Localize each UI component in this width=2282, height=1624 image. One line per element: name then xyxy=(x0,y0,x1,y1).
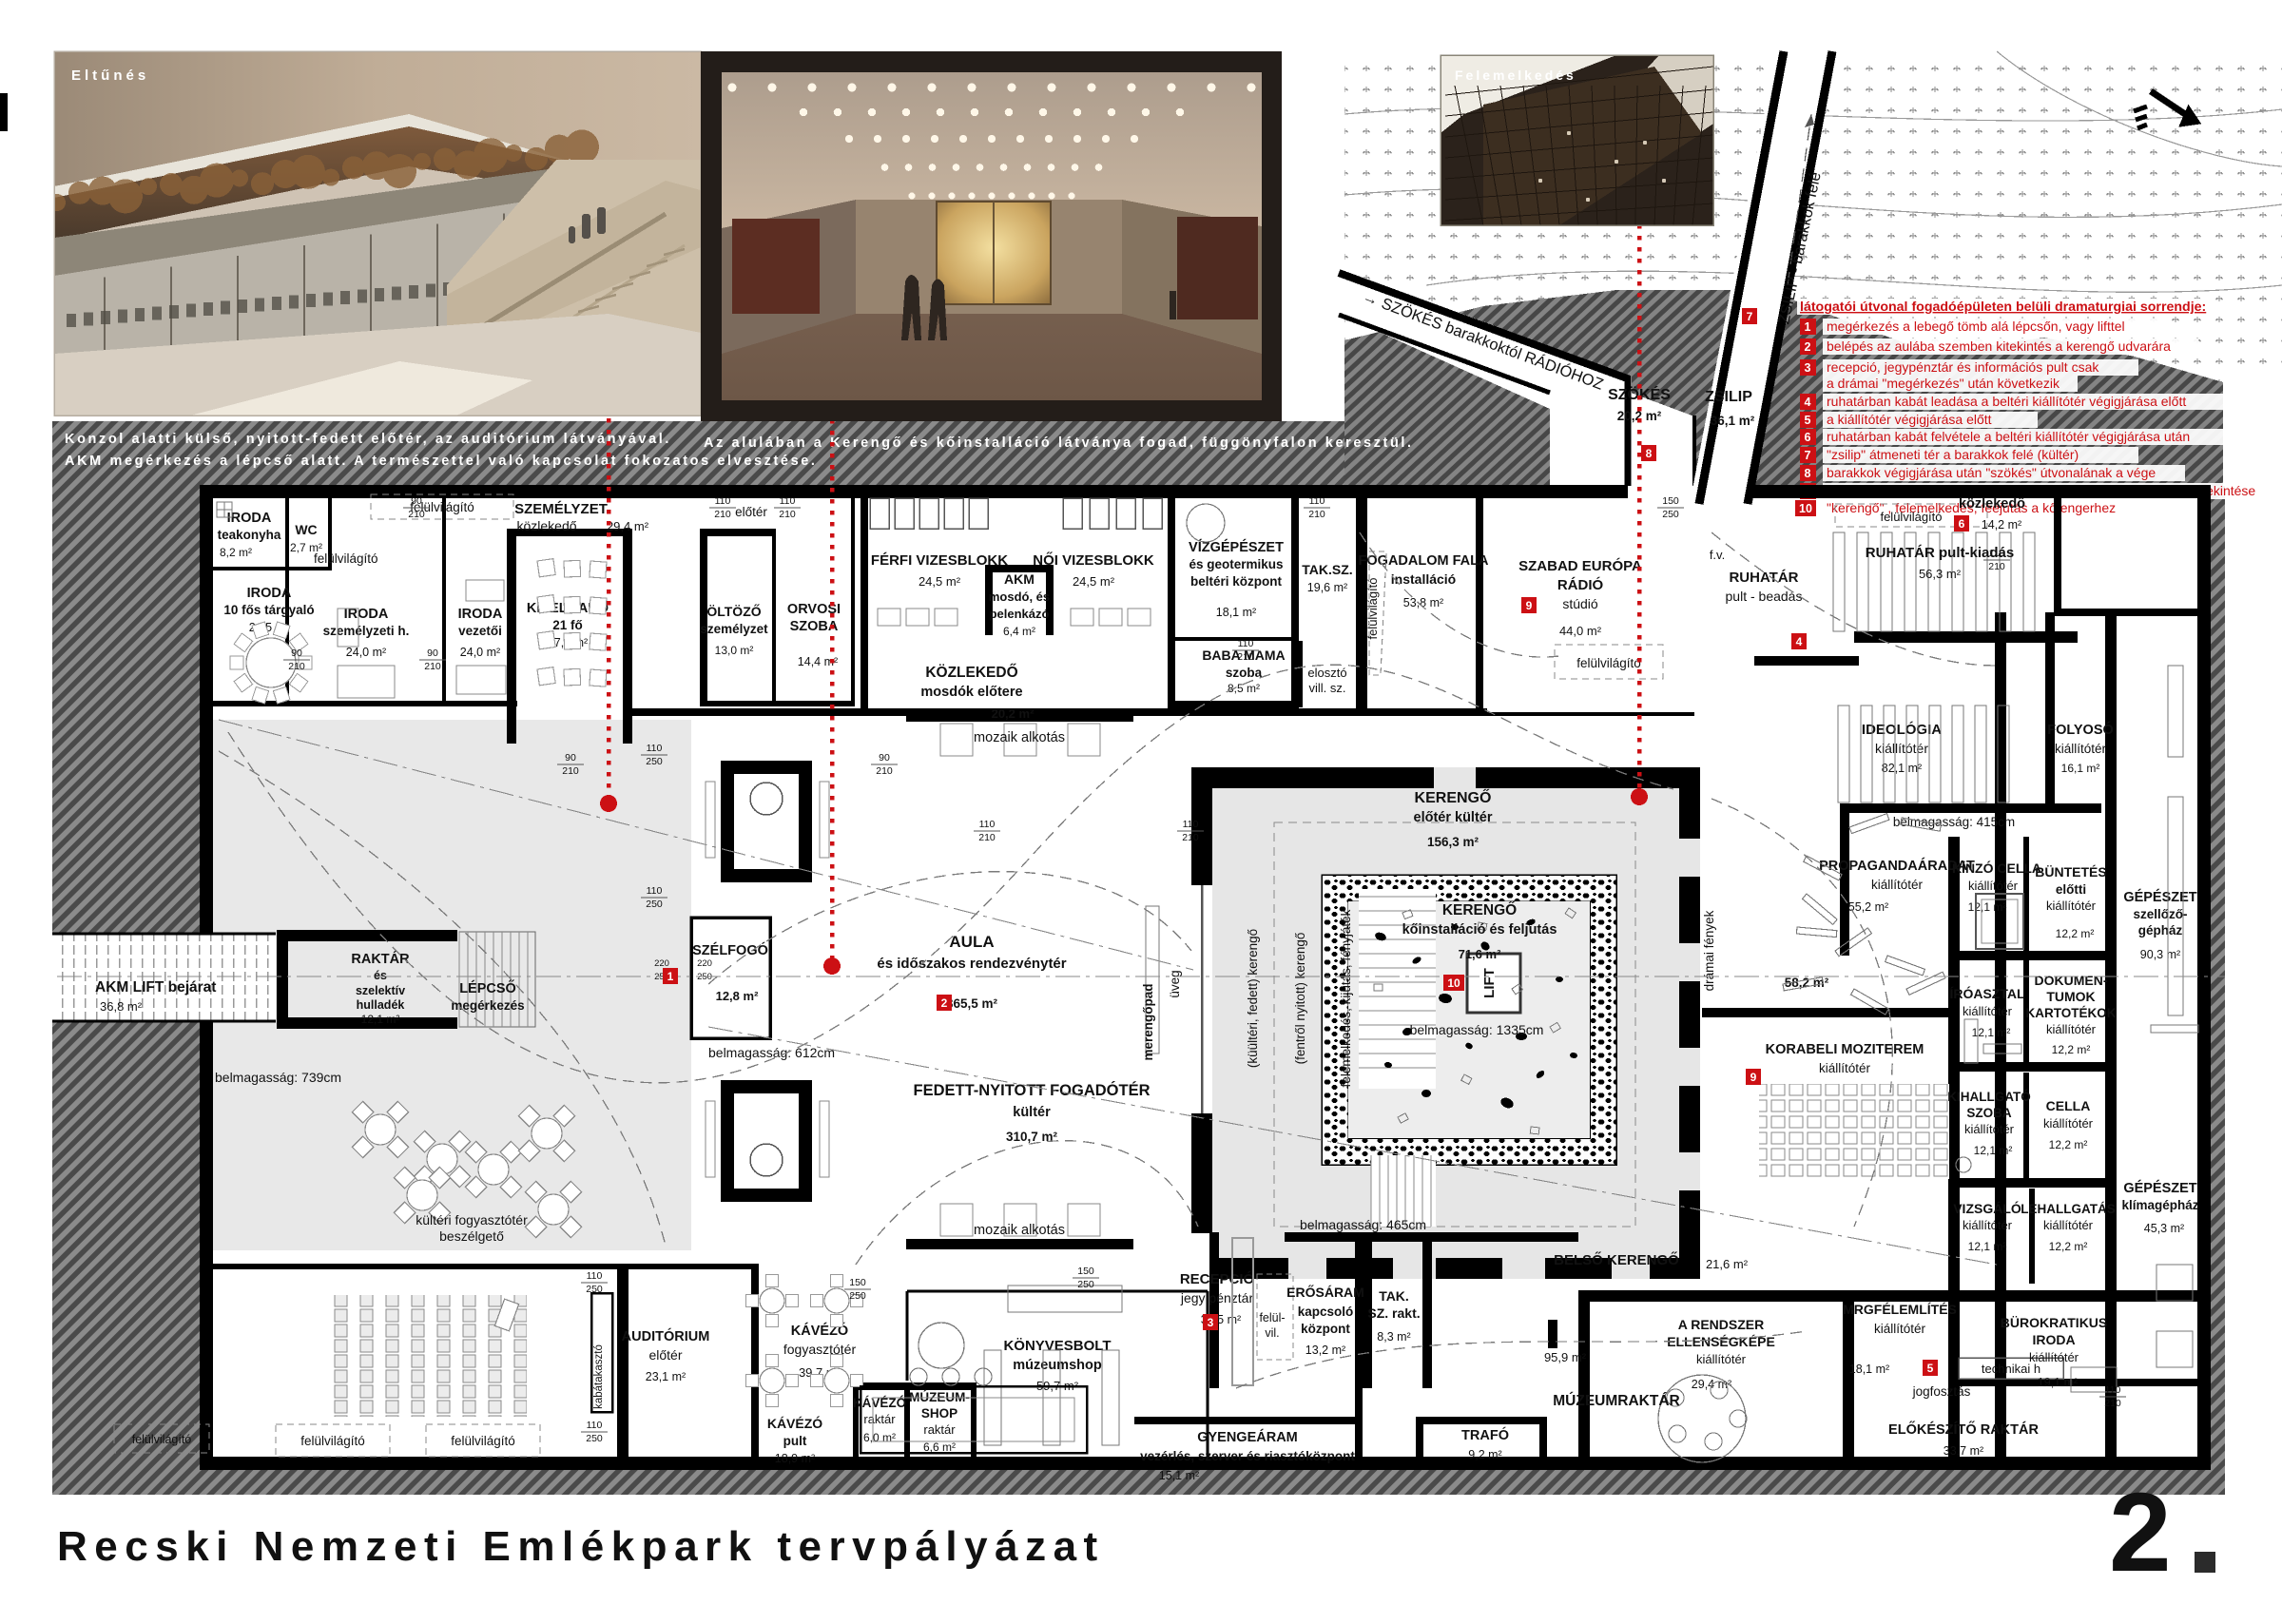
svg-text:szoba: szoba xyxy=(1226,666,1263,680)
svg-text:4: 4 xyxy=(1796,635,1803,648)
svg-text:KORABELI MOZITEREM: KORABELI MOZITEREM xyxy=(1766,1042,1924,1057)
svg-text:vezérlés, szerver és riasztókö: vezérlés, szerver és riasztóközpont xyxy=(1140,1449,1355,1463)
svg-text:LEHALLGATÁS: LEHALLGATÁS xyxy=(2021,1202,2116,1216)
svg-text:210: 210 xyxy=(1308,509,1325,520)
svg-text:kiállítótér: kiállítótér xyxy=(2043,1116,2094,1131)
svg-text:Felemelkedés: Felemelkedés xyxy=(1455,68,1576,83)
svg-text:TRAFÓ: TRAFÓ xyxy=(1461,1426,1509,1443)
svg-text:12,2 m²: 12,2 m² xyxy=(2052,1043,2091,1056)
svg-text:13,2 m²: 13,2 m² xyxy=(1305,1344,1345,1357)
svg-text:A RENDSZER: A RENDSZER xyxy=(1678,1317,1765,1332)
svg-text:személyzeti h.: személyzeti h. xyxy=(323,624,410,638)
svg-text:FEDETT-NYITOTT FOGADÓTÉR: FEDETT-NYITOTT FOGADÓTÉR xyxy=(913,1081,1150,1099)
svg-text:220: 220 xyxy=(654,958,669,969)
svg-text:felülvilágító: felülvilágító xyxy=(1365,577,1380,639)
svg-text:FOGADALOM FALA: FOGADALOM FALA xyxy=(1359,553,1489,569)
svg-text:56,3 m²: 56,3 m² xyxy=(1919,567,1962,581)
svg-text:110: 110 xyxy=(587,1420,603,1431)
svg-text:belmagasság: 739cm: belmagasság: 739cm xyxy=(215,1070,341,1085)
svg-text:IRODA: IRODA xyxy=(227,511,272,526)
svg-text:a kiállítótér végigjárása előt: a kiállítótér végigjárása előtt xyxy=(1827,412,1992,427)
svg-text:IRODA: IRODA xyxy=(458,607,503,622)
svg-text:FOLYOSÓ: FOLYOSÓ xyxy=(2047,721,2114,738)
svg-text:recepció, jegypénztár és infor: recepció, jegypénztár és információs pul… xyxy=(1827,359,2099,375)
svg-text:2: 2 xyxy=(2109,1470,2172,1595)
svg-text:kiállítótér: kiállítótér xyxy=(2029,1350,2079,1364)
svg-text:36,8 m²: 36,8 m² xyxy=(100,999,143,1014)
svg-text:5: 5 xyxy=(1927,1362,1934,1375)
svg-text:elosztó: elosztó xyxy=(1307,666,1346,680)
svg-text:KIHALLGATÓ: KIHALLGATÓ xyxy=(1947,1090,2031,1104)
svg-text:44,0 m²: 44,0 m² xyxy=(1559,624,1602,638)
svg-text:ERŐSÁRAM: ERŐSÁRAM xyxy=(1286,1284,1364,1300)
svg-text:4: 4 xyxy=(1805,396,1811,409)
svg-text:90,3 m²: 90,3 m² xyxy=(2140,948,2180,961)
svg-text:210: 210 xyxy=(1182,832,1199,843)
svg-text:55,2 m²: 55,2 m² xyxy=(1848,900,1888,914)
svg-text:24,5 m²: 24,5 m² xyxy=(919,574,961,589)
svg-text:kiállítótér: kiállítótér xyxy=(2046,899,2097,913)
svg-text:klímagépház: klímagépház xyxy=(2121,1198,2198,1212)
svg-text:18,1 m²: 18,1 m² xyxy=(1849,1363,1889,1376)
svg-text:150: 150 xyxy=(849,1277,866,1288)
svg-text:pelenkázó: pelenkázó xyxy=(990,607,1050,621)
svg-text:GÉPÉSZET: GÉPÉSZET xyxy=(2123,889,2196,905)
svg-text:ÖLTÖZŐ: ÖLTÖZŐ xyxy=(706,603,761,619)
svg-text:felülvilágító: felülvilágító xyxy=(314,551,378,566)
svg-text:BÜROKRATIKUS: BÜROKRATIKUS xyxy=(2001,1315,2108,1330)
svg-text:12,1 m²: 12,1 m² xyxy=(1974,1144,2013,1157)
svg-text:pult: pult xyxy=(783,1434,807,1448)
svg-text:12,8 m²: 12,8 m² xyxy=(716,989,759,1003)
svg-text:IRODA: IRODA xyxy=(247,586,292,601)
svg-text:hulladék: hulladék xyxy=(357,998,405,1012)
svg-text:központ: központ xyxy=(1301,1322,1350,1336)
svg-text:6: 6 xyxy=(1805,431,1811,444)
svg-text:és: és xyxy=(374,969,387,982)
svg-text:LÉPCSŐ: LÉPCSŐ xyxy=(459,979,516,996)
svg-text:előtti: előtti xyxy=(2056,882,2086,897)
svg-text:MÚZEUMRAKTÁR: MÚZEUMRAKTÁR xyxy=(1553,1392,1679,1409)
svg-text:jegy pénztár: jegy pénztár xyxy=(1180,1290,1254,1305)
svg-text:kiállítótér: kiállítótér xyxy=(1963,1218,2013,1232)
svg-text:24,0 m²: 24,0 m² xyxy=(460,646,500,659)
svg-text:f.v.: f.v. xyxy=(1710,548,1725,562)
svg-text:12,2 m²: 12,2 m² xyxy=(2049,1240,2088,1253)
svg-text:Eltűnés: Eltűnés xyxy=(71,68,149,84)
svg-text:19,1 m²: 19,1 m² xyxy=(2038,1376,2078,1389)
svg-text:250: 250 xyxy=(586,1284,603,1295)
svg-text:gépház: gépház xyxy=(2138,923,2183,938)
svg-text:TAK.SZ.: TAK.SZ. xyxy=(1302,562,1352,577)
svg-text:82,1 m²: 82,1 m² xyxy=(1882,762,1922,775)
svg-text:kiállítótér: kiállítótér xyxy=(2043,1218,2094,1232)
svg-text:kiállítótér: kiállítótér xyxy=(2055,742,2107,756)
svg-text:71,6 m²: 71,6 m² xyxy=(1459,947,1501,961)
svg-text:üveg: üveg xyxy=(1168,970,1182,997)
svg-text:8,3 m²: 8,3 m² xyxy=(1377,1330,1410,1344)
svg-text:ZSILIP: ZSILIP xyxy=(1705,389,1752,405)
svg-text:raktár: raktár xyxy=(923,1422,956,1437)
svg-text:kiállítótér: kiállítótér xyxy=(1871,878,1924,892)
svg-text:TUMOK: TUMOK xyxy=(2046,989,2095,1004)
svg-text:látogatói útvonal fogadóépület: látogatói útvonal fogadóépületen belüli … xyxy=(1800,300,2206,315)
svg-text:stúdió: stúdió xyxy=(1562,596,1598,611)
svg-text:8,2 m²: 8,2 m² xyxy=(220,546,252,559)
svg-text:MRGFÉLEMLÍTÉS: MRGFÉLEMLÍTÉS xyxy=(1843,1302,1957,1317)
svg-text:90: 90 xyxy=(565,752,576,764)
svg-text:18,1 m²: 18,1 m² xyxy=(1216,606,1256,619)
svg-text:110: 110 xyxy=(1309,495,1325,507)
svg-text:210: 210 xyxy=(2104,1398,2121,1409)
svg-text:belmagasság: 415cm: belmagasság: 415cm xyxy=(1893,815,2015,829)
svg-text:vezetői: vezetői xyxy=(458,624,502,638)
svg-text:3: 3 xyxy=(1805,361,1811,375)
svg-text:AKM LIFT bejárat: AKM LIFT bejárat xyxy=(95,979,216,996)
svg-text:kabátakasztó: kabátakasztó xyxy=(593,1344,605,1409)
svg-text:vil.: vil. xyxy=(1265,1326,1279,1340)
svg-text:21 fő: 21 fő xyxy=(552,618,583,632)
svg-text:8: 8 xyxy=(1646,447,1653,460)
svg-text:24,5 m²: 24,5 m² xyxy=(1073,574,1115,589)
svg-text:ELŐKÉSZÍTŐ RAKTÁR: ELŐKÉSZÍTŐ RAKTÁR xyxy=(1888,1421,2039,1438)
svg-text:DOKUMEN-: DOKUMEN- xyxy=(2035,973,2108,988)
svg-text:KERENGŐ: KERENGŐ xyxy=(1442,901,1517,918)
svg-text:RECEPCIÓ: RECEPCIÓ xyxy=(1180,1270,1255,1287)
svg-text:110: 110 xyxy=(979,819,996,830)
svg-text:13,0 m²: 13,0 m² xyxy=(715,644,754,657)
svg-text:KÁVÉZÓ: KÁVÉZÓ xyxy=(767,1415,822,1431)
svg-text:18,9 m²: 18,9 m² xyxy=(775,1452,815,1465)
svg-text:Az alulában a Kerengő és kőins: Az alulában a Kerengő és kőinstalláció l… xyxy=(704,435,1414,451)
svg-text:210: 210 xyxy=(424,661,441,672)
svg-text:45,3 m²: 45,3 m² xyxy=(2144,1222,2184,1235)
svg-text:kőinstalláció és feljutás: kőinstalláció és feljutás xyxy=(1402,922,1557,938)
svg-text:személyzet: személyzet xyxy=(700,622,768,636)
svg-text:90: 90 xyxy=(427,648,438,659)
svg-text:250: 250 xyxy=(849,1290,866,1302)
svg-text:merengőpad: merengőpad xyxy=(1141,983,1155,1060)
svg-text:5: 5 xyxy=(1805,414,1811,427)
svg-text:"zsilip" átmeneti tér a barakk: "zsilip" átmeneti tér a barakkok felé (k… xyxy=(1827,447,2079,462)
svg-text:SHOP: SHOP xyxy=(921,1406,957,1421)
svg-text:6,0 m²: 6,0 m² xyxy=(863,1431,896,1444)
svg-text:beltéri központ: beltéri központ xyxy=(1190,574,1283,589)
svg-text:1: 1 xyxy=(667,970,674,983)
svg-text:mosdó, és: mosdó, és xyxy=(989,590,1050,604)
svg-text:KÍNZÓ CELLA: KÍNZÓ CELLA xyxy=(1952,860,2041,876)
svg-text:kiállítótér: kiállítótér xyxy=(1819,1061,1871,1075)
svg-text:felülvilágító: felülvilágító xyxy=(1880,510,1942,524)
svg-text:BÜNTETÉS: BÜNTETÉS xyxy=(2035,864,2106,880)
svg-text:19,6 m²: 19,6 m² xyxy=(1307,581,1347,594)
svg-text:mosdók előtere: mosdók előtere xyxy=(920,685,1022,700)
svg-text:vill. sz.: vill. sz. xyxy=(1309,681,1346,695)
svg-text:kapcsoló: kapcsoló xyxy=(1298,1305,1354,1319)
svg-text:150: 150 xyxy=(1662,495,1679,507)
svg-text:előtér: előtér xyxy=(735,505,767,519)
svg-text:felülvilágító: felülvilágító xyxy=(132,1433,192,1446)
svg-text:AKM megérkezés a lépcső alatt.: AKM megérkezés a lépcső alatt. A termész… xyxy=(65,454,818,469)
svg-text:IRODA: IRODA xyxy=(2032,1332,2075,1347)
svg-text:110: 110 xyxy=(647,743,663,754)
svg-text:SZEMÉLYZET: SZEMÉLYZET xyxy=(514,501,608,517)
svg-text:közlekedő: közlekedő xyxy=(516,518,576,533)
svg-text:10 fős tárgyaló: 10 fős tárgyaló xyxy=(223,603,314,617)
svg-text:9: 9 xyxy=(1750,1071,1757,1084)
svg-text:250: 250 xyxy=(646,899,663,910)
svg-text:220: 220 xyxy=(697,958,712,969)
svg-text:GÉPÉSZET: GÉPÉSZET xyxy=(2123,1180,2196,1196)
svg-text:kiállítótér: kiállítótér xyxy=(1963,1004,2013,1018)
svg-text:210: 210 xyxy=(408,509,425,520)
svg-text:210: 210 xyxy=(779,509,796,520)
svg-text:10: 10 xyxy=(1799,502,1812,515)
svg-text:110: 110 xyxy=(1238,638,1254,649)
svg-text:16,1 m²: 16,1 m² xyxy=(2061,762,2100,775)
svg-text:15,1 m²: 15,1 m² xyxy=(1159,1469,1199,1482)
svg-text:ruhatárban kabát leadása a bel: ruhatárban kabát leadása a beltéri kiáll… xyxy=(1827,394,2186,409)
svg-text:250: 250 xyxy=(1662,509,1679,520)
svg-text:12,2 m²: 12,2 m² xyxy=(2056,927,2095,940)
svg-text:12,1 m²: 12,1 m² xyxy=(1968,900,2007,914)
svg-text:előtér: előtér xyxy=(648,1347,682,1363)
svg-text:kiállítótér: kiállítótér xyxy=(2046,1022,2097,1036)
svg-text:megérkezés: megérkezés xyxy=(451,998,524,1013)
svg-text:a drámai "megérkezés" után köv: a drámai "megérkezés" után következik xyxy=(1827,376,2060,391)
svg-text:95,9 m²: 95,9 m² xyxy=(1544,1350,1587,1364)
svg-text:FÉRFI VIZESBLOKK: FÉRFI VIZESBLOKK xyxy=(871,552,1008,569)
svg-text:belmagasság: 465cm: belmagasság: 465cm xyxy=(1300,1217,1426,1232)
svg-text:SZOBA: SZOBA xyxy=(1966,1106,2012,1120)
svg-text:mozaik alkotás: mozaik alkotás xyxy=(974,730,1065,745)
svg-text:7: 7 xyxy=(1805,449,1811,462)
svg-text:kültéri fogyasztótér: kültéri fogyasztótér xyxy=(416,1212,528,1228)
svg-text:installáció: installáció xyxy=(1391,571,1456,587)
svg-text:felemelkedés, kijutás, fényját: felemelkedés, kijutás, fényjáték xyxy=(1339,909,1353,1087)
svg-text:2,7 m²: 2,7 m² xyxy=(290,541,322,554)
svg-text:90: 90 xyxy=(291,648,302,659)
svg-text:kiállítótér: kiállítótér xyxy=(1874,1322,1926,1336)
svg-text:KERENGŐ: KERENGŐ xyxy=(1415,788,1492,806)
svg-text:12,1 m²: 12,1 m² xyxy=(1968,1240,2007,1253)
svg-text:mozaik alkotás: mozaik alkotás xyxy=(974,1223,1065,1238)
svg-text:21,6 m²: 21,6 m² xyxy=(1706,1257,1749,1271)
svg-text:2: 2 xyxy=(941,996,948,1010)
svg-text:WC: WC xyxy=(295,522,317,537)
svg-text:és időszakos rendezvénytér: és időszakos rendezvénytér xyxy=(877,956,1066,972)
svg-text:SZABAD EURÓPA: SZABAD EURÓPA xyxy=(1518,557,1642,574)
svg-text:9,2 m²: 9,2 m² xyxy=(1468,1448,1501,1461)
svg-text:12,2 m²: 12,2 m² xyxy=(2049,1138,2088,1151)
svg-text:210: 210 xyxy=(1988,561,2005,572)
svg-text:6,4 m²: 6,4 m² xyxy=(1003,625,1035,638)
svg-text:23,1 m²: 23,1 m² xyxy=(646,1370,686,1383)
svg-text:90: 90 xyxy=(411,495,422,507)
svg-text:(küültéri, fedett) kerengő: (küültéri, fedett) kerengő xyxy=(1246,929,1260,1068)
svg-text:110: 110 xyxy=(587,1270,603,1282)
svg-text:12,1 m²: 12,1 m² xyxy=(361,1013,400,1026)
svg-text:20,2 m²: 20,2 m² xyxy=(992,706,1035,721)
svg-text:Recski Nemzeti Emlékpark tervp: Recski Nemzeti Emlékpark tervpályázat xyxy=(57,1523,1105,1570)
svg-text:110: 110 xyxy=(647,885,663,897)
svg-text:fogyasztótér: fogyasztótér xyxy=(783,1342,857,1357)
svg-text:210: 210 xyxy=(714,509,731,520)
svg-text:megérkezés a lebegő tömb alá l: megérkezés a lebegő tömb alá lépcsőn, va… xyxy=(1827,319,2125,334)
svg-text:6: 6 xyxy=(1959,517,1965,531)
svg-text:VIZSGÁLÓ: VIZSGÁLÓ xyxy=(1953,1200,2021,1216)
svg-text:AULA: AULA xyxy=(949,933,994,951)
svg-text:24,0 m²: 24,0 m² xyxy=(346,646,386,659)
svg-text:36,1 m²: 36,1 m² xyxy=(1711,414,1755,428)
svg-text:1: 1 xyxy=(1805,320,1811,334)
svg-text:10: 10 xyxy=(1447,976,1460,990)
svg-text:előtér kültér: előtér kültér xyxy=(1414,810,1493,825)
svg-text:ÍRÓASZTAL: ÍRÓASZTAL xyxy=(1949,985,2025,1001)
svg-text:kültér: kültér xyxy=(1013,1105,1051,1120)
svg-text:kiállítótér: kiállítótér xyxy=(1964,1122,2015,1136)
svg-text:365,5 m²: 365,5 m² xyxy=(946,996,998,1011)
svg-text:29,4 m²: 29,4 m² xyxy=(607,519,649,533)
svg-text:belmagasság: 1335cm: belmagasság: 1335cm xyxy=(1410,1022,1544,1037)
svg-text:BELSŐ KERENGŐ: BELSŐ KERENGŐ xyxy=(1554,1251,1679,1268)
svg-text:NŐI VIZESBLOKK: NŐI VIZESBLOKK xyxy=(1033,551,1154,569)
svg-text:110: 110 xyxy=(1183,819,1199,830)
svg-text:210: 210 xyxy=(978,832,996,843)
svg-text:210: 210 xyxy=(288,661,305,672)
svg-text:belépés az aulába szemben kite: belépés az aulába szemben kitekintés a k… xyxy=(1827,338,2171,354)
svg-text:RAKTÁR: RAKTÁR xyxy=(351,951,410,967)
svg-text:szelektív: szelektív xyxy=(356,984,405,997)
svg-text:110: 110 xyxy=(2105,1384,2121,1396)
svg-text:3: 3 xyxy=(1208,1316,1214,1329)
svg-text:kiállítótér: kiállítótér xyxy=(1696,1352,1747,1366)
svg-text:felülvilágító: felülvilágító xyxy=(451,1434,515,1448)
svg-text:9: 9 xyxy=(1526,599,1533,612)
svg-text:SZ. rakt.: SZ. rakt. xyxy=(1367,1305,1420,1321)
svg-text:110: 110 xyxy=(715,495,731,507)
svg-text:raktár: raktár xyxy=(863,1412,896,1426)
svg-text:110: 110 xyxy=(1989,548,2005,559)
svg-text:KÖZLEKEDŐ: KÖZLEKEDŐ xyxy=(925,664,1017,681)
svg-text:KÖNYVESBOLT: KÖNYVESBOLT xyxy=(1003,1338,1111,1354)
svg-text:felül-: felül- xyxy=(1259,1311,1285,1324)
svg-text:156,3 m²: 156,3 m² xyxy=(1427,835,1479,849)
svg-text:szellőző-: szellőző- xyxy=(2133,907,2187,921)
svg-text:jogfosztás: jogfosztás xyxy=(1912,1384,1971,1399)
svg-text:barakkok végigjárása után "szö: barakkok végigjárása után "szökés" útvon… xyxy=(1827,465,2156,480)
svg-text:250: 250 xyxy=(586,1433,603,1444)
svg-text:közlekedő: közlekedő xyxy=(1959,496,2025,512)
svg-text:110: 110 xyxy=(780,495,796,507)
svg-text:AKM: AKM xyxy=(1004,571,1035,587)
svg-text:felülvilágító: felülvilágító xyxy=(300,1434,365,1448)
svg-text:RÁDIÓ: RÁDIÓ xyxy=(1557,576,1604,593)
svg-text:210: 210 xyxy=(1237,651,1254,663)
svg-text:(fentről nyitott) kerengő: (fentről nyitott) kerengő xyxy=(1293,933,1307,1065)
svg-text:GYENGEÁRAM: GYENGEÁRAM xyxy=(1197,1429,1298,1445)
svg-text:14,2 m²: 14,2 m² xyxy=(1982,518,2021,532)
svg-text:Konzol alatti külső, nyitott-f: Konzol alatti külső, nyitott-fedett előt… xyxy=(65,432,671,447)
svg-text:SZÉLFOGÓ: SZÉLFOGÓ xyxy=(692,941,768,958)
svg-text:LIFT: LIFT xyxy=(1481,968,1498,998)
svg-text:ruhatárban kabát felvétele a b: ruhatárban kabát felvétele a beltéri kiá… xyxy=(1827,429,2190,444)
svg-text:8: 8 xyxy=(1805,467,1811,480)
svg-text:250: 250 xyxy=(1077,1279,1094,1290)
svg-text:beszélgető: beszélgető xyxy=(439,1228,504,1244)
svg-text:250: 250 xyxy=(646,756,663,767)
svg-text:150: 150 xyxy=(1077,1266,1094,1277)
svg-text:7: 7 xyxy=(1747,310,1753,323)
svg-text:210: 210 xyxy=(562,765,579,777)
svg-text:2: 2 xyxy=(1805,340,1811,354)
svg-text:teakonyha: teakonyha xyxy=(218,528,281,542)
svg-text:33,7 m²: 33,7 m² xyxy=(1944,1444,1983,1458)
svg-text:210: 210 xyxy=(876,765,893,777)
svg-text:KARTOTÉKOK: KARTOTÉKOK xyxy=(2025,1006,2116,1020)
svg-text:TAK.: TAK. xyxy=(1379,1288,1409,1304)
svg-text:és geotermikus: és geotermikus xyxy=(1189,557,1283,571)
svg-text:kiállítótér: kiállítótér xyxy=(1968,879,2019,893)
svg-text:AUDITÓRIUM: AUDITÓRIUM xyxy=(622,1327,710,1344)
svg-text:CELLA: CELLA xyxy=(2046,1098,2091,1113)
svg-text:belmagasság: 612cm: belmagasság: 612cm xyxy=(708,1045,835,1060)
svg-text:IDEOLÓGIA: IDEOLÓGIA xyxy=(1862,721,1942,738)
svg-text:drámai fények: drámai fények xyxy=(1702,910,1716,991)
svg-text:múzeumshop: múzeumshop xyxy=(1013,1358,1102,1373)
svg-text:90: 90 xyxy=(879,752,890,764)
svg-text:felülvilágító: felülvilágító xyxy=(1576,656,1641,670)
